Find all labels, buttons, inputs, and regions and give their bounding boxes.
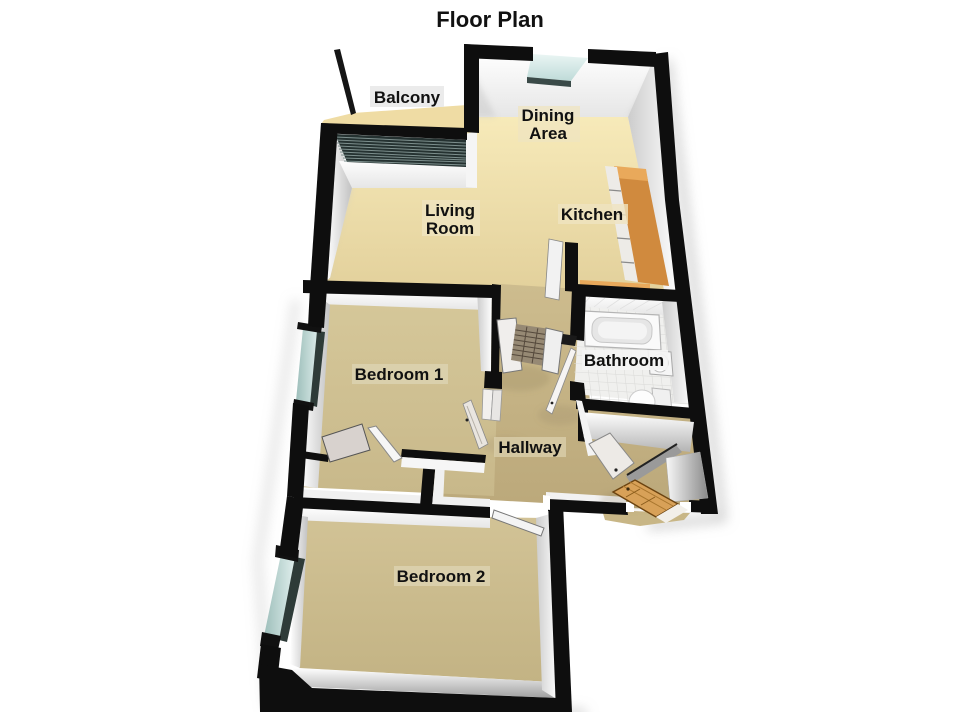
svg-text:Bedroom 2: Bedroom 2 bbox=[397, 567, 486, 586]
svg-text:Kitchen: Kitchen bbox=[561, 205, 623, 224]
svg-text:Bedroom 1: Bedroom 1 bbox=[355, 365, 444, 384]
svg-text:Bathroom: Bathroom bbox=[584, 351, 664, 370]
svg-text:Floor Plan: Floor Plan bbox=[436, 7, 544, 32]
svg-text:Balcony: Balcony bbox=[374, 88, 441, 107]
svg-text:Dining: Dining bbox=[522, 106, 575, 125]
svg-text:Living: Living bbox=[425, 201, 475, 220]
svg-text:Hallway: Hallway bbox=[498, 438, 562, 457]
svg-text:Area: Area bbox=[529, 124, 567, 143]
svg-text:Room: Room bbox=[426, 219, 474, 238]
